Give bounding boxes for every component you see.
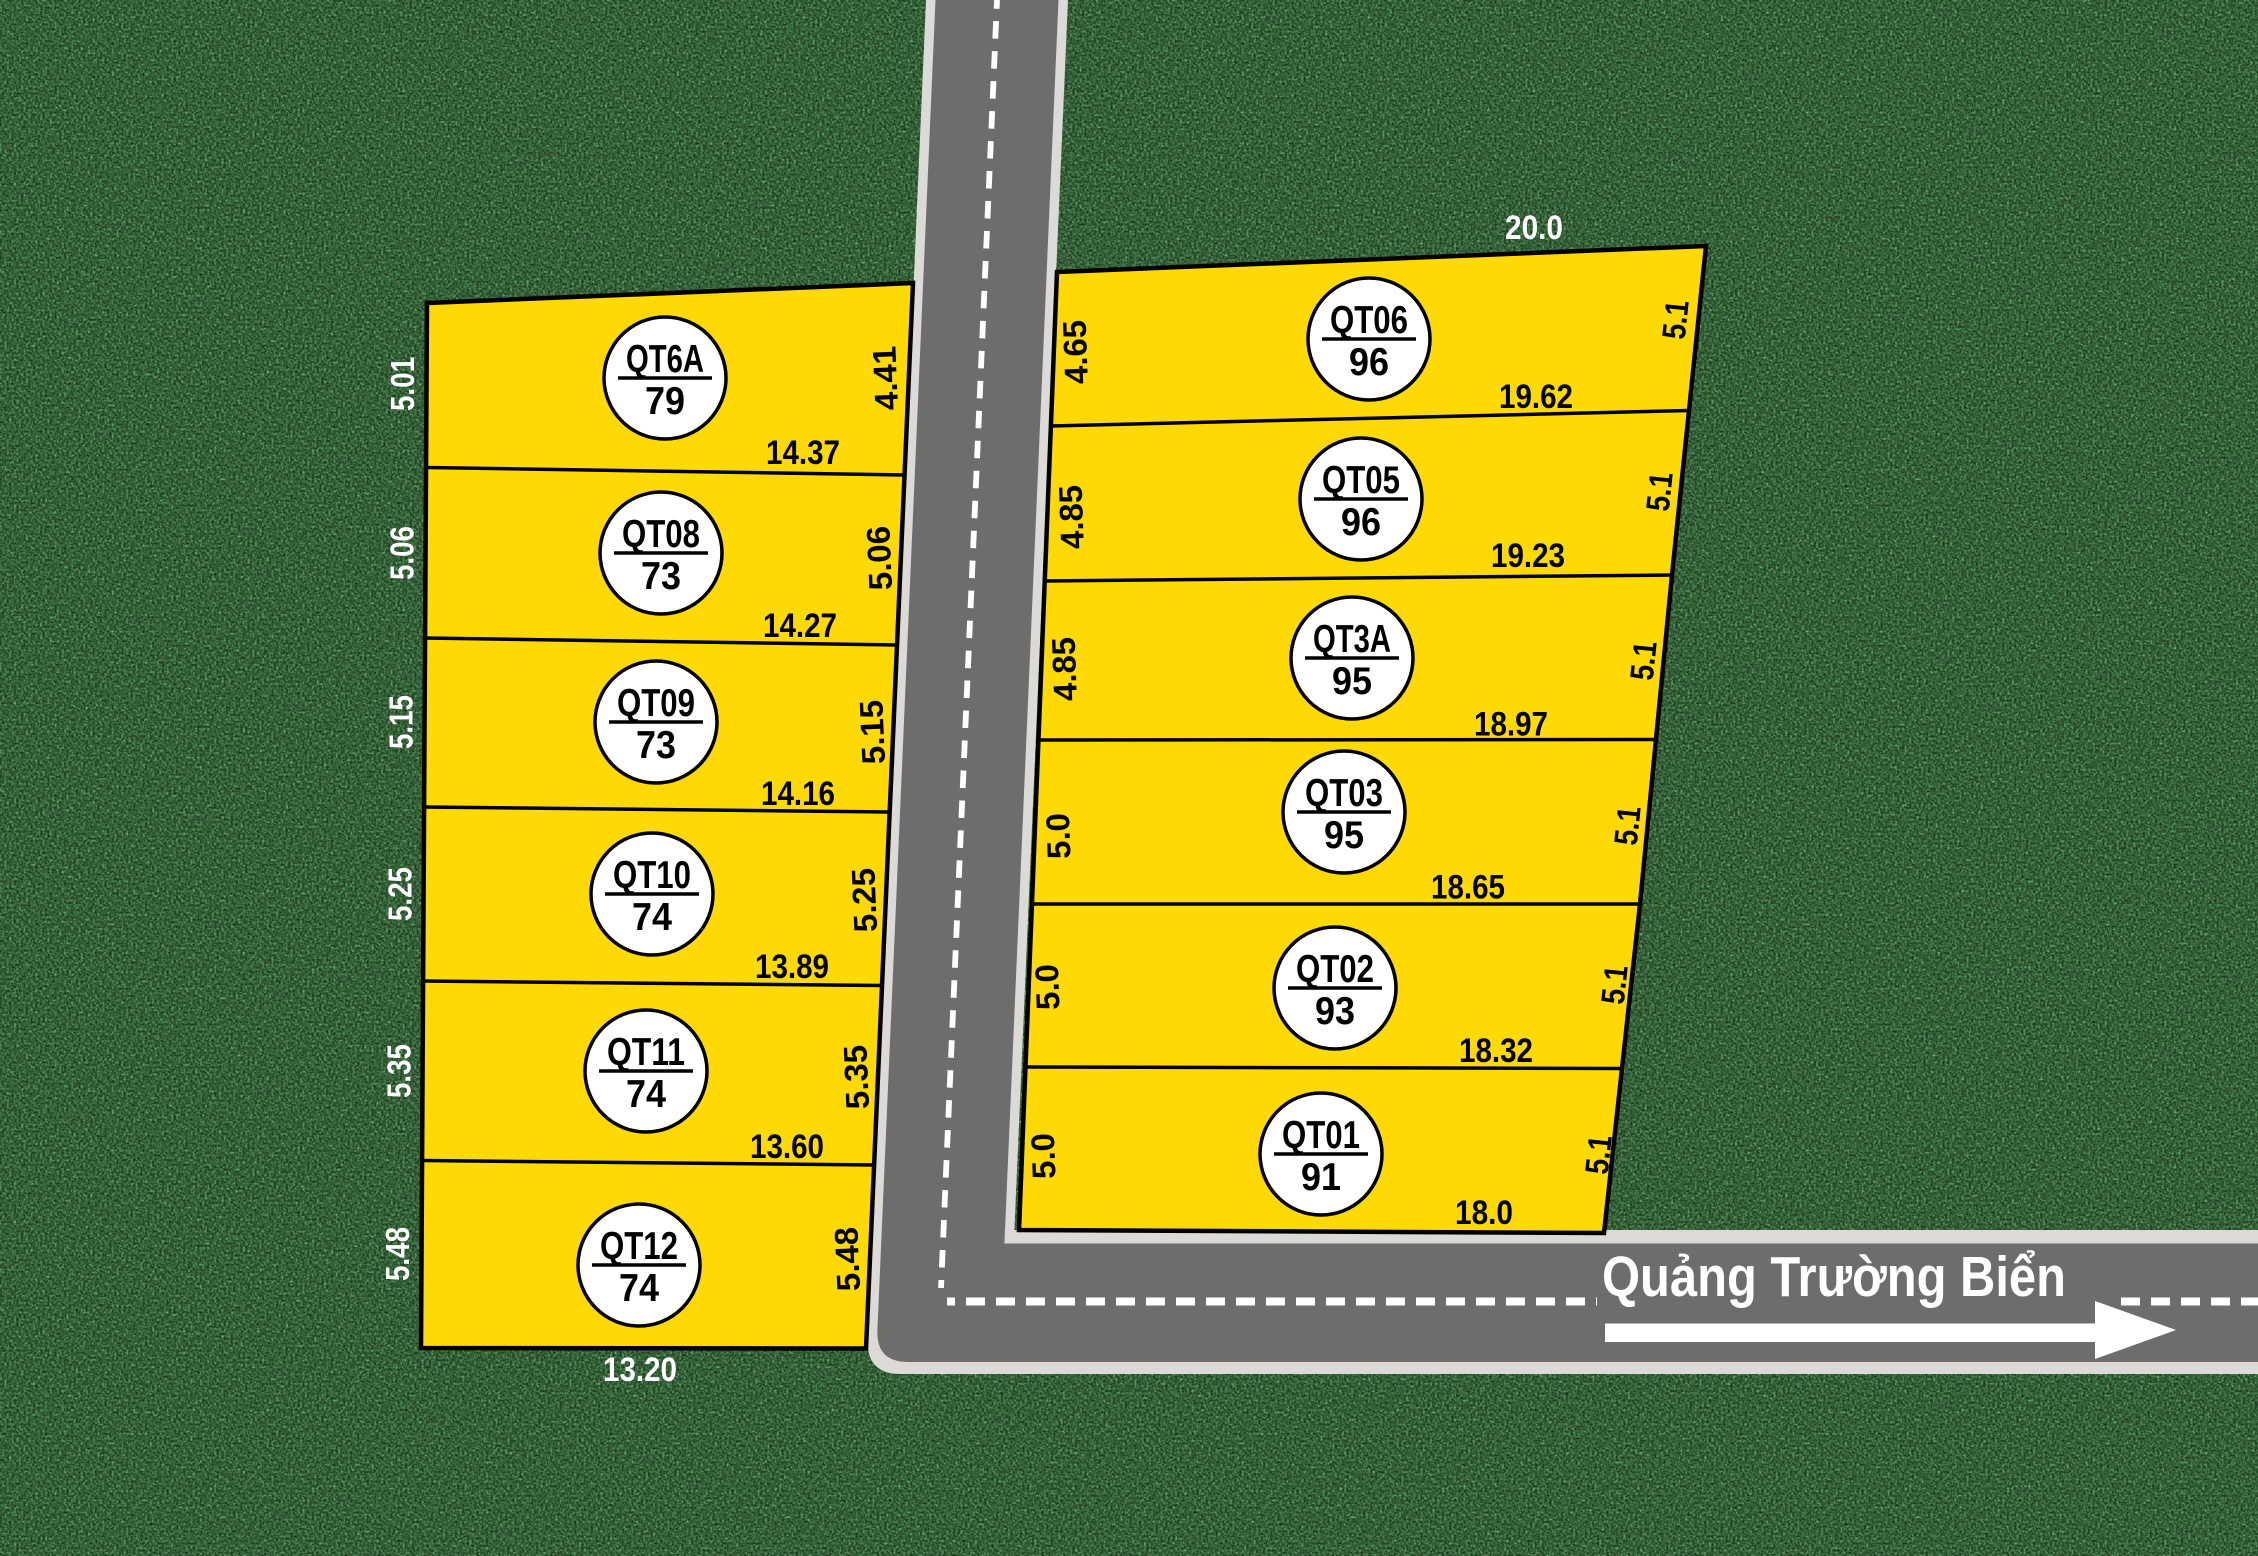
svg-text:13.89: 13.89	[755, 948, 829, 986]
svg-text:95: 95	[1332, 660, 1372, 703]
svg-text:QT01: QT01	[1282, 1114, 1360, 1157]
svg-text:95: 95	[1324, 814, 1364, 857]
svg-text:13.60: 13.60	[750, 1128, 824, 1166]
svg-text:73: 73	[641, 555, 681, 598]
svg-text:5.1: 5.1	[1655, 298, 1696, 341]
svg-text:QT11: QT11	[607, 1031, 685, 1074]
svg-text:5.25: 5.25	[844, 867, 884, 933]
svg-text:5.1: 5.1	[1623, 639, 1664, 682]
svg-text:96: 96	[1341, 501, 1381, 544]
svg-text:5.0: 5.0	[1039, 813, 1078, 860]
svg-text:5.06: 5.06	[383, 526, 420, 580]
svg-text:QT6A: QT6A	[626, 338, 704, 381]
svg-text:74: 74	[626, 1073, 666, 1116]
svg-text:91: 91	[1301, 1156, 1341, 1199]
svg-text:5.25: 5.25	[381, 867, 418, 921]
svg-text:QT05: QT05	[1322, 459, 1400, 502]
svg-text:5.35: 5.35	[380, 1044, 417, 1098]
svg-text:18.0: 18.0	[1455, 1194, 1513, 1232]
svg-text:18.65: 18.65	[1431, 869, 1505, 907]
svg-text:4.85: 4.85	[1045, 636, 1084, 701]
svg-text:4.41: 4.41	[865, 345, 905, 411]
svg-text:20.0: 20.0	[1505, 209, 1563, 247]
svg-text:5.15: 5.15	[382, 695, 419, 749]
svg-text:96: 96	[1349, 341, 1389, 384]
svg-text:QT3A: QT3A	[1313, 618, 1391, 661]
svg-text:5.06: 5.06	[859, 525, 899, 591]
svg-text:14.27: 14.27	[763, 607, 837, 645]
svg-text:93: 93	[1315, 990, 1355, 1033]
svg-text:QT02: QT02	[1296, 948, 1374, 991]
svg-text:19.62: 19.62	[1499, 378, 1573, 416]
svg-text:QT10: QT10	[613, 854, 691, 897]
svg-text:5.1: 5.1	[1639, 470, 1680, 513]
svg-text:QT08: QT08	[622, 513, 700, 556]
svg-text:QT03: QT03	[1305, 772, 1383, 815]
svg-text:4.65: 4.65	[1056, 319, 1095, 384]
svg-text:5.1: 5.1	[1594, 963, 1635, 1006]
svg-text:5.01: 5.01	[384, 357, 421, 411]
svg-text:79: 79	[645, 380, 685, 423]
svg-text:14.37: 14.37	[766, 434, 840, 472]
svg-text:18.97: 18.97	[1474, 706, 1548, 744]
svg-text:5.48: 5.48	[379, 1227, 416, 1281]
svg-text:5.0: 5.0	[1024, 1133, 1063, 1180]
svg-text:QT09: QT09	[617, 682, 695, 725]
svg-text:73: 73	[636, 724, 676, 767]
svg-text:5.15: 5.15	[852, 699, 892, 765]
svg-text:14.16: 14.16	[761, 775, 835, 813]
svg-text:Quảng Trường Biển: Quảng Trường Biển	[1602, 1245, 2066, 1309]
svg-text:13.20: 13.20	[603, 1351, 677, 1389]
svg-text:5.35: 5.35	[836, 1044, 876, 1110]
svg-text:QT12: QT12	[600, 1225, 678, 1268]
svg-text:19.23: 19.23	[1491, 537, 1565, 575]
svg-text:5.0: 5.0	[1028, 964, 1067, 1011]
svg-text:5.48: 5.48	[827, 1226, 867, 1292]
svg-text:74: 74	[619, 1267, 659, 1310]
svg-text:5.1: 5.1	[1578, 1133, 1619, 1176]
svg-text:QT06: QT06	[1330, 299, 1408, 342]
svg-text:5.1: 5.1	[1607, 804, 1648, 847]
svg-text:4.85: 4.85	[1052, 484, 1091, 549]
svg-text:18.32: 18.32	[1459, 1032, 1533, 1070]
svg-text:74: 74	[632, 896, 672, 939]
